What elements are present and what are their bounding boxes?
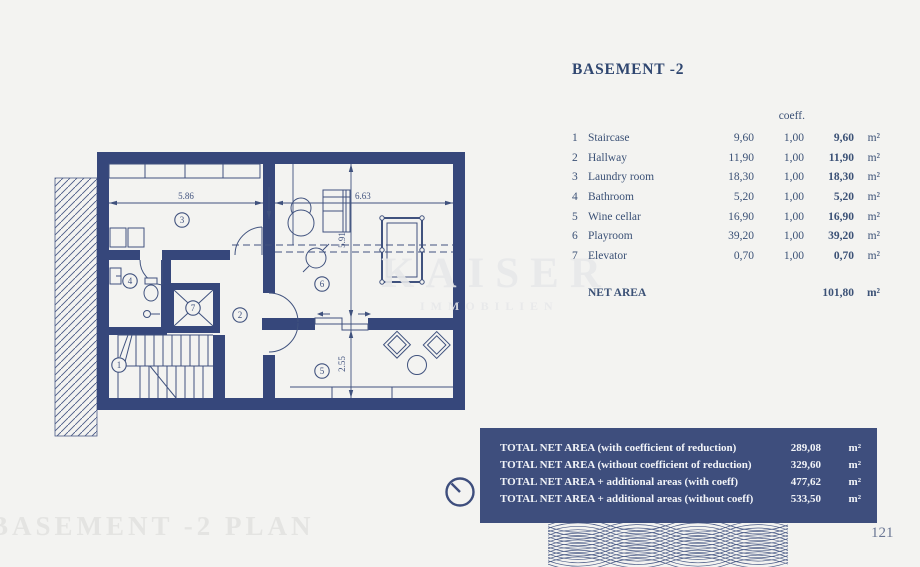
room-net-area: 0,70 <box>804 250 854 262</box>
net-area-unit: m² <box>854 287 880 299</box>
room-label-bathroom: 4 <box>123 274 137 288</box>
totals-label: TOTAL NET AREA (without coefficient of r… <box>500 459 773 471</box>
net-area-label: NET AREA <box>572 287 804 299</box>
wave-pattern-decoration <box>548 521 792 567</box>
room-label-laundry: 3 <box>175 213 189 227</box>
room-name: Playroom <box>588 230 698 242</box>
room-net-area: 5,20 <box>804 191 854 203</box>
room-unit: m² <box>854 211 880 223</box>
dim-laundry-width: 5.86 <box>178 191 194 201</box>
room-name: Elevator <box>588 250 698 262</box>
room-unit: m² <box>854 230 880 242</box>
room-area: 5,20 <box>698 191 754 203</box>
svg-text:1: 1 <box>117 360 122 370</box>
room-name: Wine cellar <box>588 211 698 223</box>
room-net-area: 9,60 <box>804 132 854 144</box>
plan-title-watermark: BASEMENT -2 PLAN <box>0 511 315 542</box>
row-number: 6 <box>572 230 588 242</box>
totals-label: TOTAL NET AREA + additional areas (with … <box>500 476 773 488</box>
room-area: 18,30 <box>698 171 754 183</box>
room-unit: m² <box>854 191 880 203</box>
totals-row: TOTAL NET AREA + additional areas (witho… <box>500 490 861 507</box>
room-unit: m² <box>854 171 880 183</box>
svg-text:7: 7 <box>191 303 196 313</box>
svg-text:3: 3 <box>180 215 185 225</box>
room-coeff: 1,00 <box>754 132 804 144</box>
room-area: 16,90 <box>698 211 754 223</box>
table-row: 1 Staircase 9,60 1,00 9,60 m² <box>572 128 880 148</box>
room-label-hallway: 2 <box>233 308 247 322</box>
room-name: Hallway <box>588 152 698 164</box>
clock-icon <box>444 476 478 510</box>
room-label-playroom: 6 <box>315 277 329 291</box>
row-number: 4 <box>572 191 588 203</box>
totals-unit: m² <box>821 493 861 505</box>
totals-row: TOTAL NET AREA (with coefficient of redu… <box>500 439 861 456</box>
room-area: 39,20 <box>698 230 754 242</box>
totals-label: TOTAL NET AREA (with coefficient of redu… <box>500 442 773 454</box>
room-unit: m² <box>854 132 880 144</box>
laundry-counter <box>109 164 260 247</box>
room-net-area: 39,20 <box>804 230 854 242</box>
row-number: 1 <box>572 132 588 144</box>
totals-value: 533,50 <box>773 493 821 505</box>
totals-row: TOTAL NET AREA + additional areas (with … <box>500 473 861 490</box>
table-row: 5 Wine cellar 16,90 1,00 16,90 m² <box>572 207 880 227</box>
page-title: BASEMENT -2 <box>572 61 684 79</box>
room-name: Bathroom <box>588 191 698 203</box>
room-area: 11,90 <box>698 152 754 164</box>
room-coeff: 1,00 <box>754 191 804 203</box>
net-area-value: 101,80 <box>804 287 854 299</box>
room-unit: m² <box>854 250 880 262</box>
row-number: 2 <box>572 152 588 164</box>
page-number: 121 <box>871 525 894 542</box>
room-unit: m² <box>854 152 880 164</box>
table-row: 4 Bathroom 5,20 1,00 5,20 m² <box>572 187 880 207</box>
table-row: 7 Elevator 0,70 1,00 0,70 m² <box>572 246 880 266</box>
room-net-area: 11,90 <box>804 152 854 164</box>
staircase <box>118 335 213 398</box>
totals-unit: m² <box>821 459 861 471</box>
area-table: 1 Staircase 9,60 1,00 9,60 m² 2 Hallway … <box>572 128 880 266</box>
svg-text:6: 6 <box>320 279 325 289</box>
dim-wine-depth: 2.55 <box>337 356 347 372</box>
svg-text:5: 5 <box>320 366 325 376</box>
table-row: 6 Playroom 39,20 1,00 39,20 m² <box>572 226 880 246</box>
room-coeff: 1,00 <box>754 211 804 223</box>
totals-row: TOTAL NET AREA (without coefficient of r… <box>500 456 861 473</box>
totals-value: 289,08 <box>773 442 821 454</box>
svg-text:4: 4 <box>128 276 133 286</box>
room-coeff: 1,00 <box>754 152 804 164</box>
svg-text:2: 2 <box>238 310 243 320</box>
totals-value: 329,60 <box>773 459 821 471</box>
table-row: 2 Hallway 11,90 1,00 11,90 m² <box>572 148 880 168</box>
watermark-subtitle: IMMOBILIEN <box>420 299 559 314</box>
room-label-staircase: 1 <box>112 358 126 372</box>
table-row: 3 Laundry room 18,30 1,00 18,30 m² <box>572 167 880 187</box>
room-coeff: 1,00 <box>754 230 804 242</box>
totals-unit: m² <box>821 442 861 454</box>
wine-cellar-furniture <box>290 331 453 398</box>
room-label-elevator: 7 <box>186 301 200 315</box>
row-number: 3 <box>572 171 588 183</box>
net-area-row: NET AREA 101,80 m² <box>572 283 880 303</box>
ground-hatch <box>55 178 97 436</box>
room-net-area: 18,30 <box>804 171 854 183</box>
dim-playroom-width: 6.63 <box>355 191 371 201</box>
room-area: 0,70 <box>698 250 754 262</box>
totals-box: TOTAL NET AREA (with coefficient of redu… <box>480 428 877 523</box>
room-area: 9,60 <box>698 132 754 144</box>
room-name: Laundry room <box>588 171 698 183</box>
coeff-column-header: coeff. <box>572 110 805 122</box>
room-name: Staircase <box>588 132 698 144</box>
document-page: 5.86 6.63 5.91 2.55 1 2 3 4 <box>0 0 920 567</box>
room-coeff: 1,00 <box>754 171 804 183</box>
room-label-wine-cellar: 5 <box>315 364 329 378</box>
room-coeff: 1,00 <box>754 250 804 262</box>
totals-value: 477,62 <box>773 476 821 488</box>
room-net-area: 16,90 <box>804 211 854 223</box>
row-number: 5 <box>572 211 588 223</box>
totals-label: TOTAL NET AREA + additional areas (witho… <box>500 493 773 505</box>
sliding-door <box>315 312 371 331</box>
dim-playroom-depth: 5.91 <box>337 232 347 248</box>
row-number: 7 <box>572 250 588 262</box>
totals-unit: m² <box>821 476 861 488</box>
